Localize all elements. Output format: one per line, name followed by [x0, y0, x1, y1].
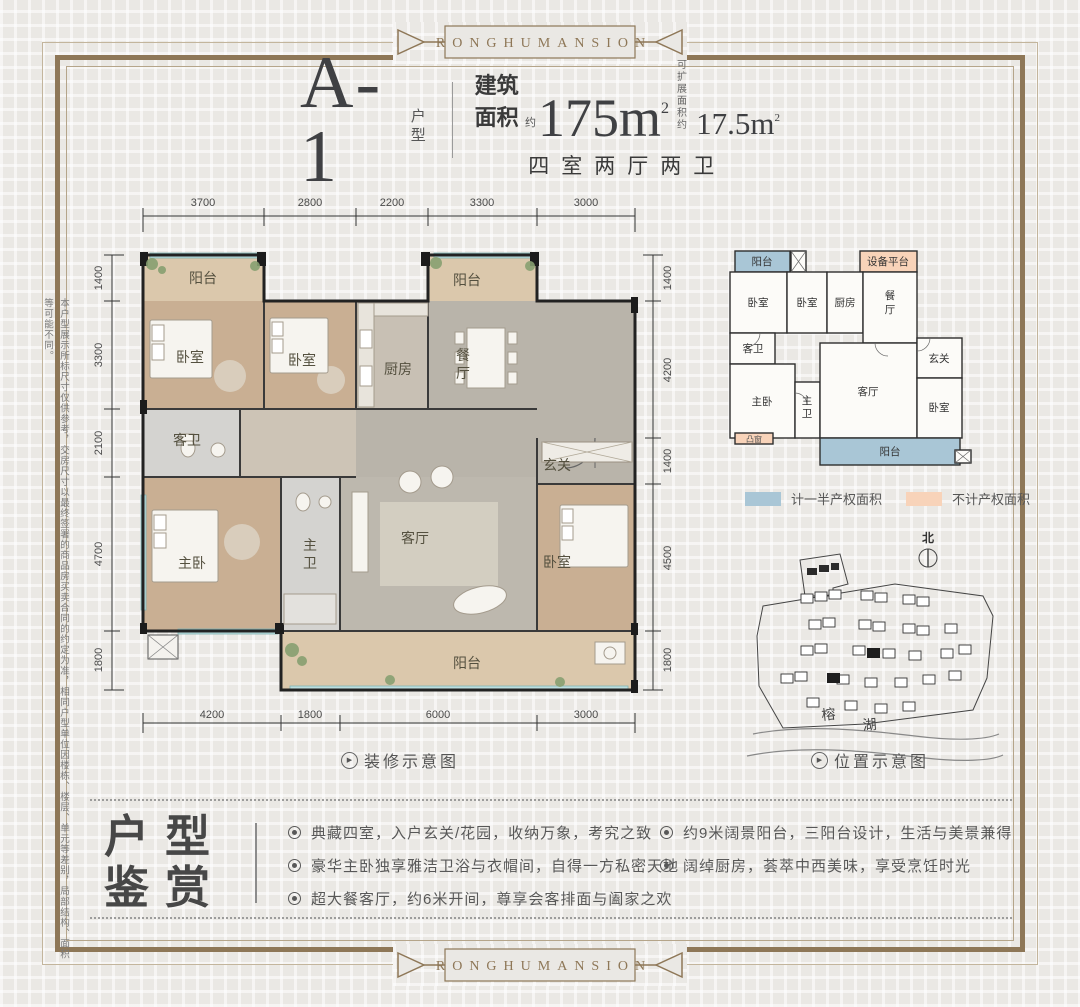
- feature-item: 超大餐客厅，约6米开间，尊享会客排面与阖家之欢: [288, 888, 679, 909]
- dim-bottom-3: 6000: [426, 709, 450, 721]
- sitemap-caption: ▶ 位置示意图: [760, 748, 980, 772]
- schematic-bedroom-b: 卧室: [797, 296, 818, 309]
- unit-suffix: 户 型: [411, 108, 426, 146]
- band-arrow-right-icon: [656, 953, 682, 977]
- room-label-balcony-b: 阳台: [453, 655, 481, 671]
- site-map: 北 榕 湖: [745, 528, 1005, 768]
- dim-top-5: 3000: [574, 197, 598, 209]
- area-approx: 约: [522, 114, 538, 142]
- feature-text: 超大餐客厅，约6米开间，尊享会客排面与阖家之欢: [311, 888, 672, 909]
- room-label-bedroom-a: 卧室: [176, 349, 204, 365]
- disclaimer-text: 本户型展示所标尺寸仅供参考，交房尺寸以最终签署的商品房买卖合同的约定为准，相同户…: [55, 298, 71, 963]
- bullet-icon: [660, 826, 673, 839]
- area-label: 建筑面积: [475, 68, 522, 142]
- schematic-bedroom-c: 卧室: [929, 401, 950, 414]
- unit-name: A-1: [300, 46, 403, 194]
- poster-page: RONGHUMANSION RONGHUMANSION A-1 户 型 建筑面积…: [0, 0, 1080, 1007]
- schematic-bay-window: 凸窗: [746, 434, 762, 444]
- area-sup: 2: [661, 100, 669, 118]
- schematic-kitchen: 厨房: [835, 296, 856, 309]
- header-area-block: 建筑面积 约 175m 2 可扩展 面积约 17.5m 2 四室两厅两卫: [475, 60, 780, 180]
- floorplan-caption-text: 装修示意图: [364, 748, 459, 772]
- schematic-master: 主卧: [752, 395, 773, 408]
- features-title-line2: 鉴赏: [104, 863, 226, 914]
- lake-name-char2: 湖: [862, 716, 877, 733]
- schematic-dining-char1: 餐: [885, 289, 896, 302]
- features-title: 户型 鉴赏: [104, 812, 226, 914]
- bullet-icon: [288, 892, 301, 905]
- feature-item: 阔绰厨房，荟萃中西美味，享受烹饪时光: [660, 855, 1012, 876]
- features-title-line1: 户型: [104, 812, 226, 863]
- features-left-column: 典藏四室，入户玄关/花园，收纳万象，考究之致 豪华主卧独享雅洁卫浴与衣帽间，自得…: [288, 822, 679, 909]
- schematic-bedroom-a: 卧室: [748, 296, 769, 309]
- band-arrow-right-icon: [656, 30, 682, 54]
- dim-left-5: 1800: [93, 648, 105, 672]
- dim-right-2: 4200: [662, 358, 674, 382]
- brand-text-bottom: RONGHUMANSION: [436, 959, 652, 974]
- schematic-equipment: 设备平台: [867, 255, 909, 268]
- features-right-column: 约9米阔景阳台，三阳台设计，生活与美景兼得 阔绰厨房，荟萃中西美味，享受烹饪时光: [660, 822, 1012, 876]
- band-arrow-left-icon: [398, 953, 424, 977]
- dim-bottom-4: 3000: [574, 709, 598, 721]
- dim-right-3: 1400: [662, 449, 674, 473]
- brand-band-bottom: RONGHUMANSION: [0, 940, 1080, 990]
- room-label-guest-bath: 客卫: [173, 432, 201, 448]
- feature-text: 豪华主卧独享雅洁卫浴与衣帽间，自得一方私密天地: [311, 855, 679, 876]
- floorplan-caption: ▶ 装修示意图: [290, 748, 510, 772]
- features-divider: [255, 823, 257, 903]
- feature-text: 阔绰厨房，荟萃中西美味，享受烹饪时光: [683, 855, 971, 876]
- divider-dashed-bottom: [90, 917, 1012, 919]
- dim-right-1: 1400: [662, 266, 674, 290]
- brand-text-top: RONGHUMANSION: [436, 36, 652, 51]
- dim-right-5: 1800: [662, 648, 674, 672]
- dim-right-4: 4500: [662, 546, 674, 570]
- unit-suffix-char1: 户: [411, 108, 426, 127]
- schematic-foyer: 玄关: [929, 352, 950, 365]
- highlighted-building: [827, 673, 840, 683]
- room-label-dining-char1: 餐: [456, 347, 470, 363]
- dim-left-2: 3300: [93, 343, 105, 367]
- feature-item: 豪华主卧独享雅洁卫浴与衣帽间，自得一方私密天地: [288, 855, 679, 876]
- legend-swatch-half-area: [745, 492, 781, 506]
- dim-left-3: 2100: [93, 431, 105, 455]
- dim-top-4: 3300: [470, 197, 494, 209]
- dim-left-1: 1400: [93, 266, 105, 290]
- ext-label-line2: 面积约: [677, 96, 693, 132]
- feature-text: 约9米阔景阳台，三阳台设计，生活与美景兼得: [683, 822, 1012, 843]
- ext-area-value: 17.5m: [696, 110, 774, 142]
- divider-dashed-top: [90, 799, 1012, 801]
- schematic-master-bath-char2: 卫: [802, 408, 813, 420]
- schematic-balcony-top: 阳台: [752, 255, 773, 268]
- room-layout-desc: 四室两厅两卫: [475, 150, 780, 180]
- dim-bottom-2: 1800: [298, 709, 322, 721]
- header-divider: [452, 82, 453, 158]
- unit-suffix-char2: 型: [411, 127, 426, 146]
- main-floorplan: 阳台 卧室 卧室 厨房 餐 厅 阳台 客卫 玄关 主卧 主 卫 客厅 卧室 阳台…: [90, 180, 680, 745]
- highlighted-building: [867, 648, 880, 658]
- area-legend: 计一半产权面积 不计产权面积: [745, 489, 1030, 508]
- sitemap-caption-text: 位置示意图: [834, 748, 929, 772]
- bullet-icon: [288, 826, 301, 839]
- room-label-master: 主卧: [178, 555, 206, 571]
- schematic-guest-bath: 客卫: [743, 342, 764, 355]
- legend-label-half-area: 计一半产权面积: [791, 489, 882, 508]
- room-label-master-bath-char1: 主: [303, 537, 317, 553]
- room-label-living: 客厅: [401, 530, 429, 546]
- area-value: 175m: [538, 96, 661, 142]
- schematic-balcony-bottom: 阳台: [880, 445, 901, 458]
- area-schematic: 阳台 设备平台 卧室 卧室 厨房 餐 厅 客卫 玄关 主卧 主 卫 客厅 卧室 …: [715, 243, 1005, 483]
- room-label-bedroom-b: 卧室: [288, 352, 316, 368]
- legend-label-no-area: 不计产权面积: [952, 489, 1030, 508]
- room-label-foyer: 玄关: [543, 457, 571, 473]
- feature-text: 典藏四室，入户玄关/花园，收纳万象，考究之致: [311, 822, 652, 843]
- room-label-kitchen: 厨房: [384, 361, 412, 377]
- dim-top-2: 2800: [298, 197, 322, 209]
- room-label-master-bath-char2: 卫: [303, 555, 317, 571]
- caption-play-icon: ▶: [811, 752, 828, 769]
- dim-left-4: 4700: [93, 542, 105, 566]
- room-label-balcony-tr: 阳台: [453, 272, 481, 288]
- schematic-master-bath-char1: 主: [802, 395, 813, 407]
- ext-area-label: 可扩展 面积约: [669, 60, 696, 142]
- ext-area-sup: 2: [775, 112, 781, 124]
- room-label-balcony-tl: 阳台: [189, 270, 217, 286]
- legend-swatch-no-area: [906, 492, 942, 506]
- caption-play-icon: ▶: [341, 752, 358, 769]
- header: A-1 户 型 建筑面积 约 175m 2 可扩展 面积约 17.5m 2 四室…: [300, 72, 780, 167]
- bullet-icon: [288, 859, 301, 872]
- dim-top-1: 3700: [191, 197, 215, 209]
- feature-item: 典藏四室，入户玄关/花园，收纳万象，考究之致: [288, 822, 679, 843]
- dim-top-3: 2200: [380, 197, 404, 209]
- schematic-living: 客厅: [858, 385, 879, 398]
- room-label-bedroom-c: 卧室: [543, 554, 571, 570]
- bullet-icon: [660, 859, 673, 872]
- ext-label-line1: 可扩展: [677, 60, 693, 96]
- schematic-dining-char2: 厅: [885, 304, 896, 316]
- dim-bottom-1: 4200: [200, 709, 224, 721]
- room-label-dining-char2: 厅: [456, 365, 470, 381]
- north-label: 北: [922, 530, 934, 545]
- feature-item: 约9米阔景阳台，三阳台设计，生活与美景兼得: [660, 822, 1012, 843]
- lake-name-char1: 榕: [821, 706, 837, 723]
